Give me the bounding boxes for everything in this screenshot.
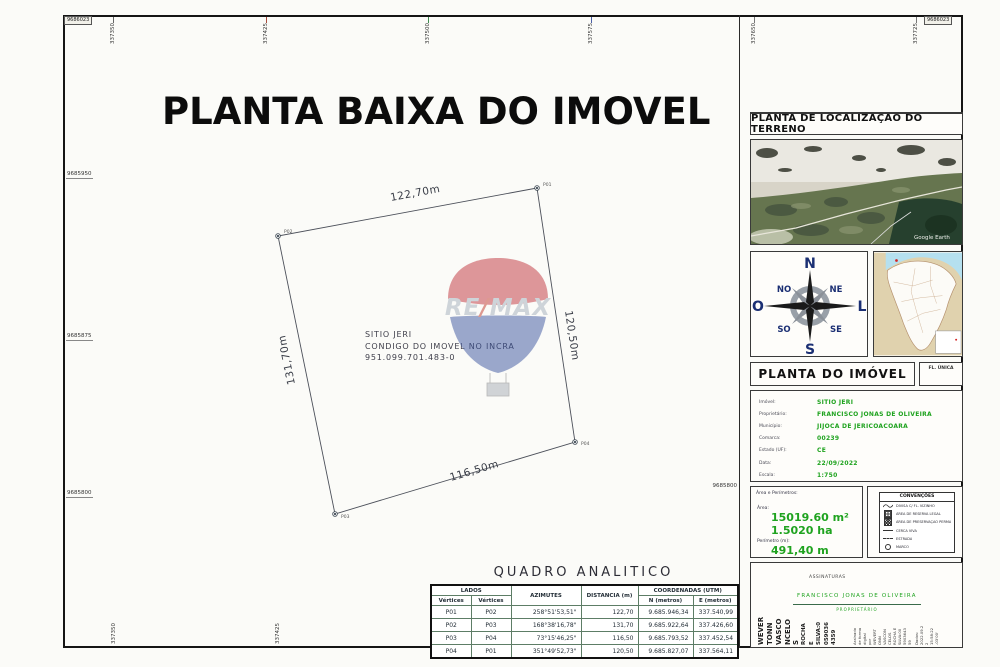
- grid-tick-top: 337500: [425, 17, 431, 44]
- legend-box: CONVENÇÕES DIVISA C/ FL. VIZINHO ÁREA DE…: [867, 486, 963, 558]
- col-header-vertice: Vértices: [431, 596, 471, 606]
- remax-wordmark: RE/MAX: [445, 295, 552, 321]
- digital-signature-text: NCELO: [784, 589, 792, 645]
- table-row: P04P01 351°49'52,73"120,50 9.685.827,073…: [431, 645, 738, 659]
- balloon-basket: [487, 383, 509, 396]
- grid-corner-label: 9686023: [64, 16, 92, 25]
- grid-tick-bottom: 337425: [275, 614, 281, 644]
- grid-tick-top: 337425: [263, 17, 269, 44]
- drawing-right-divider: [739, 15, 740, 648]
- compass-e: L: [858, 299, 867, 315]
- balloon-bottom-blue: [450, 316, 546, 374]
- area-m2-value: 15019.60 m²: [771, 511, 849, 524]
- detail-row: Proprietário:FRANCISCO JONAS DE OLIVEIRA: [759, 408, 962, 420]
- compass-ne: NE: [830, 285, 843, 295]
- col-header-n: N (metros): [638, 596, 693, 606]
- property-plan-header: PLANTA DO IMÓVEL: [750, 362, 915, 386]
- remax-watermark: RE/MAX: [440, 255, 556, 405]
- legend-item: DIVISA C/ FL. VIZINHO: [880, 502, 954, 510]
- vertex-label: P04: [581, 441, 590, 447]
- detail-row: Comarca:00239: [759, 433, 962, 445]
- ceara-state-map: [874, 252, 962, 356]
- legend-item: ÁREA DE RESERVA LEGAL: [880, 510, 954, 518]
- legend-item: ÁREA DE PRESERVAÇÃO PERMANENTE: [880, 518, 954, 526]
- detail-row: Escala:1:750: [759, 469, 962, 481]
- compass-n: N: [804, 256, 816, 272]
- vertex-label: P01: [543, 182, 552, 188]
- location-plan-header: PLANTA DE LOCALIZAÇAO DO TERRENO: [750, 112, 963, 135]
- wave-symbol: [883, 503, 893, 509]
- col-header-coordenadas: COORDENADAS (UTM): [638, 585, 738, 596]
- grid-tick-top: 337650: [751, 17, 757, 44]
- compass-s: S: [805, 342, 815, 356]
- compass-w: O: [752, 299, 764, 315]
- dash-symbol: [883, 538, 893, 539]
- digital-signature-text: SILVA:0: [816, 591, 822, 645]
- area-perimeter-box: Área e Perímetros: Área: 15019.60 m² 1.5…: [750, 486, 863, 558]
- sheet-number-note: FL. ÚNICA: [919, 362, 963, 386]
- analytic-table: LADOS AZIMUTES DISTANCIA (m) COORDENADAS…: [430, 584, 739, 659]
- circle-symbol: [883, 544, 893, 550]
- analytic-table-title: QUADRO ANALITICO: [430, 565, 737, 580]
- area-ha-value: 1.5020 ha: [771, 524, 833, 537]
- location-marker: [895, 259, 898, 262]
- col-header-distancia: DISTANCIA (m): [581, 585, 638, 606]
- grid-tick-top: 337725: [913, 17, 919, 44]
- compass-rose: N S L O NE NO SE SO: [751, 252, 867, 356]
- scanned-survey-sheet: 9686023 9686023 337350 337425 337500 337…: [0, 0, 1000, 667]
- digital-signature-text: TONN: [766, 589, 774, 645]
- legend-item: CERCA VIVA: [880, 527, 954, 535]
- signature-line: [793, 604, 921, 605]
- vertex-label: P02: [284, 229, 293, 235]
- owner-signature-name: FRANCISCO JONAS DE OLIVEIRA: [797, 593, 947, 599]
- legend-inner: CONVENÇÕES DIVISA C/ FL. VIZINHO ÁREA DE…: [879, 492, 955, 553]
- dimension-right: 120,50m: [562, 310, 581, 362]
- grid-symbol: [883, 510, 893, 518]
- col-header-lados: LADOS: [431, 585, 511, 596]
- map-inset: [936, 331, 961, 353]
- satellite-credit: Google Earth: [914, 235, 950, 241]
- dimension-bottom: 116,50m: [448, 458, 500, 484]
- detail-row: Estado (UF):CE: [759, 445, 962, 457]
- compass-se: SE: [830, 325, 842, 335]
- grid-tick-bottom: 337350: [111, 614, 117, 644]
- legend-item: ESTRADA: [880, 535, 954, 543]
- detail-row: Município:JIJOCA DE JERICOACOARA: [759, 420, 962, 432]
- grid-tick-top: 337350: [110, 17, 116, 44]
- digital-signature-text: 4359: [831, 591, 837, 645]
- table-row: P02P03 168°38'16,78"131,70 9.685.922,643…: [431, 619, 738, 632]
- legend-item: MARCO: [880, 543, 954, 551]
- satellite-location-image: Google Earth: [750, 139, 963, 245]
- hatch-symbol: [883, 518, 893, 526]
- col-header-azimutes: AZIMUTES: [511, 585, 581, 606]
- area-box-header: Área e Perímetros:: [756, 491, 798, 496]
- dimension-top: 122,70m: [389, 183, 441, 204]
- property-details: Imóvel:SITIO JERI Proprietário:FRANCISCO…: [750, 390, 963, 482]
- area-label: Área:: [757, 506, 769, 511]
- compass-sw: SO: [777, 325, 790, 335]
- table-row: P01P02 258°51'53,51"122,70 9.685.946,343…: [431, 606, 738, 619]
- detail-row: Imóvel:SITIO JERI: [759, 396, 962, 408]
- digital-signature-text: ROCHA: [801, 591, 807, 645]
- digital-signature-text: E: [809, 591, 815, 645]
- legend-title: CONVENÇÕES: [880, 493, 954, 502]
- signatures-box: ASSINATURAS WEVER TONN VASCO NCELO S ROC…: [750, 562, 963, 648]
- grid-tick-top: 337575: [588, 17, 594, 44]
- state-map-box: [873, 251, 963, 357]
- digital-signature-text: 059036: [824, 591, 830, 645]
- table-row: P03P04 73°15'46,25"116,50 9.685.793,5233…: [431, 632, 738, 645]
- compass-rose-box: N S L O NE NO SE SO: [750, 251, 868, 357]
- digital-signature-text: WEVER: [757, 589, 765, 645]
- compass-nw: NO: [777, 285, 791, 295]
- owner-signature-role: PROPRIETÁRIO: [793, 607, 921, 612]
- grid-corner-label: 9686023: [924, 16, 952, 25]
- digital-signature-text: VASCO: [775, 589, 783, 645]
- signatures-header: ASSINATURAS: [809, 575, 846, 580]
- vertex-label: P03: [341, 514, 350, 520]
- dimension-left: 131,70m: [276, 334, 298, 386]
- col-header-e: E (metros): [693, 596, 738, 606]
- perimeter-value: 491,40 m: [771, 544, 829, 557]
- col-header-vertice: Vértices: [471, 596, 511, 606]
- detail-row: Data:22/09/2022: [759, 457, 962, 469]
- line-symbol: [883, 530, 893, 531]
